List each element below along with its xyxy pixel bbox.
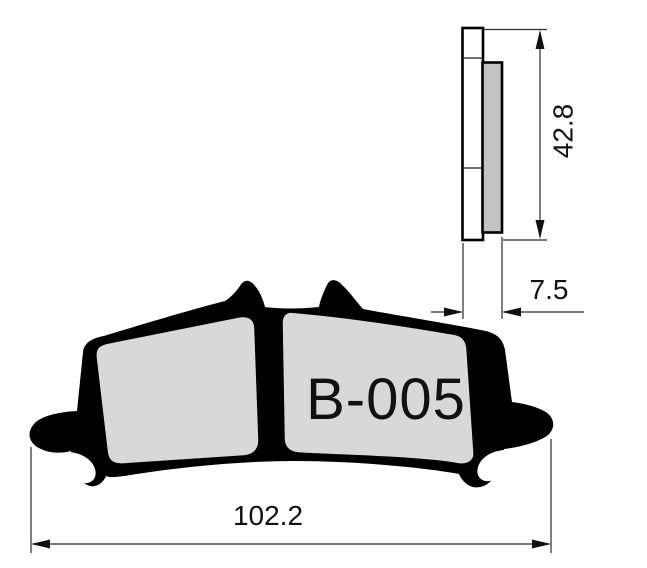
drawing-canvas: 42.8 7.5 B-005 102.2 <box>0 0 647 568</box>
thickness-arrow-left-icon <box>502 308 521 317</box>
part-number-label: B-005 <box>306 367 466 432</box>
side-view-friction-material <box>483 63 503 233</box>
side-view <box>463 28 503 240</box>
side-view-backplate <box>463 28 484 240</box>
height-arrow-down-icon <box>536 220 545 239</box>
width-arrow-left-icon <box>31 540 50 549</box>
front-view-friction-pad-left <box>95 316 260 466</box>
height-dimension-label: 42.8 <box>547 104 578 159</box>
height-arrow-up-icon <box>536 30 545 49</box>
thickness-arrow-right-icon <box>444 308 463 317</box>
thickness-dimension-label: 7.5 <box>530 274 569 305</box>
width-arrow-right-icon <box>532 540 551 549</box>
width-dimension-label: 102.2 <box>233 500 303 531</box>
brake-pad-technical-drawing: 42.8 7.5 B-005 102.2 <box>0 0 647 568</box>
